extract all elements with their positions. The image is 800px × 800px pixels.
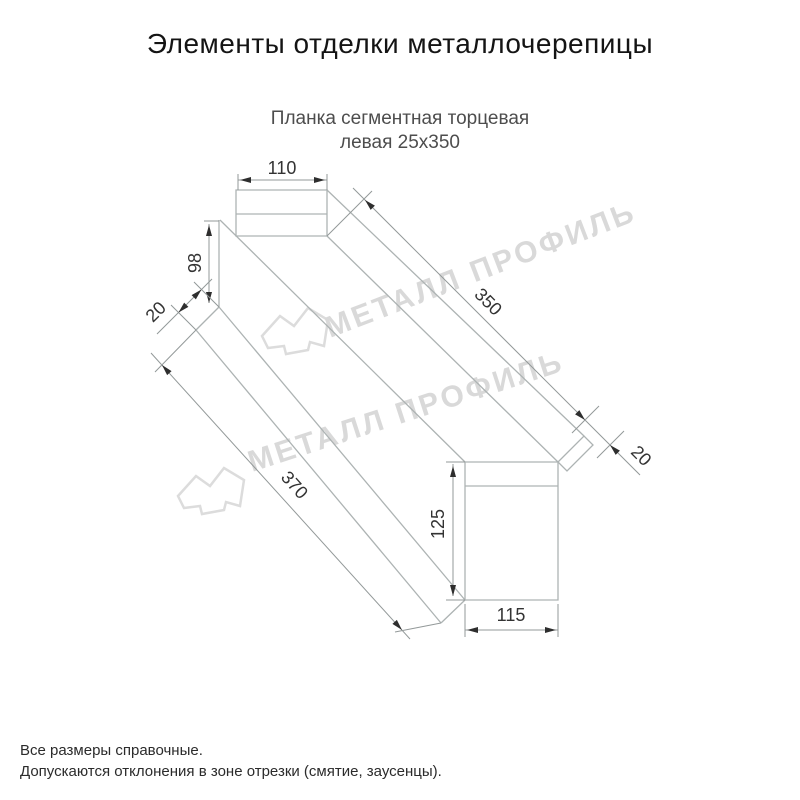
catalog-page: Элементы отделки металлочерепицы Планка …: [0, 0, 800, 800]
brand-logo-watermark-1: [262, 308, 328, 354]
dim-end-face-width-label: 115: [497, 605, 526, 625]
brand-logo-watermark-2: [178, 468, 244, 514]
dimension-115: 115: [465, 604, 558, 637]
dim-near-end-height-label: 98: [185, 253, 205, 273]
dimension-110: 110: [238, 158, 327, 190]
dimension-20-near: 20: [142, 279, 219, 334]
dim-top-flange-width-label: 110: [268, 158, 297, 178]
footer-notes: Все размеры справочные. Допускаются откл…: [20, 740, 442, 782]
watermark-text-1: МЕТАЛЛ ПРОФИЛЬ: [321, 195, 641, 344]
dim-near-hem-label: 20: [142, 298, 170, 326]
footer-note-2: Допускаются отклонения в зоне отрезки (с…: [20, 761, 442, 782]
dimension-125: 125: [428, 462, 465, 600]
watermark-text-2: МЕТАЛЛ ПРОФИЛЬ: [244, 345, 568, 478]
footer-note-1: Все размеры справочные.: [20, 740, 442, 761]
dim-end-face-height-label: 125: [428, 509, 448, 539]
technical-drawing: МЕТАЛЛ ПРОФИЛЬ МЕТАЛЛ ПРОФИЛЬ: [0, 0, 800, 800]
